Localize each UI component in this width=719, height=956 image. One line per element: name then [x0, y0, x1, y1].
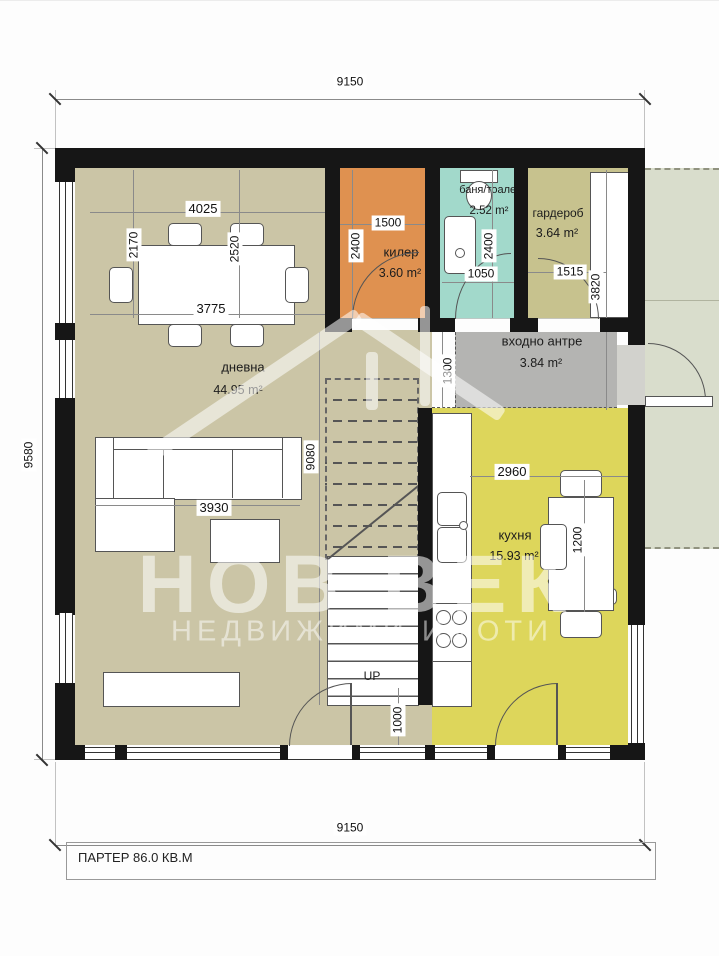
wall-right-upper: [628, 148, 645, 345]
sofa-back-line: [113, 449, 282, 450]
room-hall-name: входно антре: [502, 334, 583, 349]
floor-plan: UP 9150: [0, 0, 719, 956]
window-post: [352, 745, 360, 760]
wall-pantry-bath: [425, 168, 440, 332]
room-living-area: 44.95 m²: [213, 383, 262, 397]
photo-edge-line: [0, 0, 719, 1]
kitchen-chair: [560, 611, 602, 638]
kitchen-chair: [540, 524, 567, 570]
sideboard: [103, 672, 240, 707]
window-post: [425, 745, 435, 760]
wall-bottom-corner-left: [55, 745, 85, 760]
dim-sofa-length: 3930: [197, 500, 232, 516]
room-living-name: дневна: [221, 360, 264, 375]
kitchen-chair: [560, 470, 602, 497]
dim-line-left: [42, 148, 43, 760]
sofa-armrest-line: [282, 437, 283, 498]
room-wardrobe-area: 3.64 m²: [536, 226, 578, 240]
window-post: [280, 745, 288, 760]
extension-line: [55, 762, 56, 845]
sofa-divider: [232, 449, 233, 498]
window-right-kitchen: [631, 625, 644, 743]
sofa-body: [95, 437, 302, 500]
dim-wardrobe-width: 1515: [554, 265, 587, 280]
extension-line: [644, 762, 645, 845]
room-bathroom-area: 2.52 m²: [470, 205, 509, 217]
window-post: [487, 745, 495, 760]
window-post: [558, 745, 566, 760]
entrance-sill: [617, 345, 645, 405]
sofa-divider: [163, 449, 164, 498]
wall-bath-wardrobe: [514, 168, 528, 332]
dim-dining-depth: 2170: [127, 229, 142, 262]
wall-left-pier: [55, 148, 75, 182]
room-kitchen-area: 15.93 m²: [489, 549, 538, 563]
dim-kitchen-table: 1200: [571, 524, 586, 557]
wall-stairs-kitchen: [418, 408, 432, 705]
floor-title: ПАРТЕР 86.0 КВ.М: [78, 850, 193, 865]
wall-hall-top-seg: [325, 318, 352, 332]
wall-pantry-left: [325, 168, 340, 332]
window-left-dining: [59, 182, 73, 323]
wall-left-pier: [55, 398, 75, 615]
kitchen-sink-bowl: [437, 527, 467, 563]
wall-hall-top-seg: [418, 318, 455, 332]
door-gap: [288, 746, 352, 759]
room-wardrobe-name: гардероб: [532, 206, 583, 220]
dining-chair: [168, 324, 202, 347]
door-leaf-kitchen-terrace: [556, 683, 558, 745]
stove-burner: [452, 633, 467, 648]
dim-wardrobe-depth: 3820: [589, 271, 604, 304]
wall-top: [55, 148, 645, 168]
door-leaf-living-terrace: [350, 683, 352, 745]
dim-dining-width: 4025: [186, 201, 221, 217]
dim-hall-depth: 1300: [441, 355, 456, 388]
wall-hall-top-seg: [510, 318, 538, 332]
door-leaf-entrance: [645, 396, 713, 407]
stove-burner: [436, 633, 451, 648]
sofa-armrest-line: [113, 437, 114, 498]
wall-left-pier: [55, 323, 75, 340]
dim-living-length: 9080: [304, 441, 319, 474]
dim-line: [319, 332, 320, 705]
dim-overall-top: 9150: [334, 75, 367, 90]
dim-dining-width-bottom: 3775: [194, 301, 229, 317]
extension-line: [34, 759, 55, 760]
dining-chair: [109, 267, 133, 303]
dim-terrace-door: 1000: [391, 704, 406, 737]
dining-chair: [168, 223, 202, 246]
dining-chair: [285, 267, 309, 303]
terrace-step-line: [645, 300, 719, 301]
kitchen-faucet: [459, 521, 468, 530]
bathroom-sink-drain: [455, 248, 465, 258]
kitchen-open-boundary: [432, 407, 617, 408]
dim-overall-left: 9580: [22, 439, 37, 472]
dim-kitchen-width: 2960: [495, 464, 530, 480]
wall-hall-top-seg: [600, 318, 645, 332]
stove-burner: [452, 610, 467, 625]
room-bathroom-name: баня/тоалет: [459, 184, 521, 196]
dim-dining-table-span: 2520: [228, 233, 243, 266]
room-kitchen-name: кухня: [498, 528, 531, 543]
window-left-lower: [59, 613, 73, 683]
dining-chair: [230, 324, 264, 347]
dim-pantry-depth: 2400: [349, 230, 364, 263]
room-hall-area: 3.84 m²: [520, 356, 562, 370]
dim-pantry-width: 1500: [372, 216, 405, 231]
wall-bottom-corner-right: [610, 745, 645, 760]
dim-overall-bottom: 9150: [334, 821, 367, 836]
dim-bathroom-depth: 2400: [482, 230, 497, 263]
dim-line-top: [55, 99, 645, 100]
stairs-up-label: UP: [364, 669, 381, 683]
dim-bathroom-door: 1050: [465, 267, 498, 282]
bathroom-sink: [444, 216, 476, 274]
stove-burner: [436, 610, 451, 625]
window-post: [115, 745, 127, 760]
dim-line: [606, 170, 607, 410]
window-left-living: [59, 340, 73, 398]
sofa-chaise: [95, 498, 175, 552]
wall-right-mid: [628, 405, 645, 625]
door-gap: [494, 746, 558, 759]
coffee-table: [210, 519, 280, 563]
stairs-upper-flight: [325, 378, 419, 560]
